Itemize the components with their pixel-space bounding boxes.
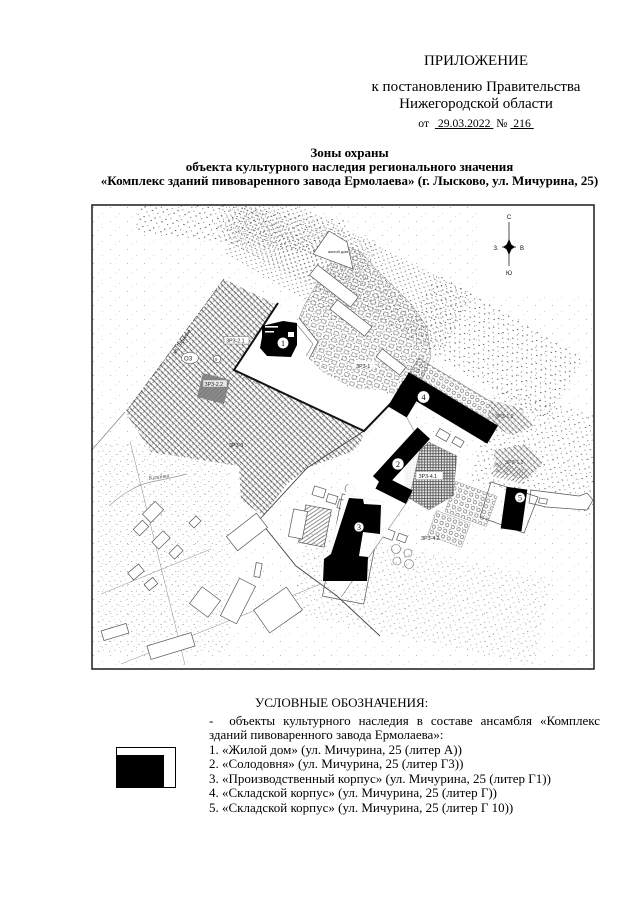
svg-text:жилой дом: жилой дом — [328, 249, 348, 254]
svg-text:ЗРЗ-2.2: ЗРЗ-2.2 — [205, 382, 224, 388]
svg-text:ОЗ: ОЗ — [184, 357, 193, 363]
svg-text:ЗРЗ-4.2: ЗРЗ-4.2 — [421, 536, 440, 542]
svg-text:ЗРЗ-1: ЗРЗ-1 — [356, 364, 370, 370]
svg-text:ЗРЗ-3: ЗРЗ-3 — [229, 443, 243, 449]
svg-text:1: 1 — [281, 339, 285, 348]
svg-text:ЗРЗ-1.3: ЗРЗ-1.3 — [505, 460, 524, 466]
svg-text:З.: З. — [493, 246, 499, 252]
svg-text:Ю: Ю — [506, 271, 512, 277]
svg-text:2: 2 — [396, 460, 400, 469]
svg-text:ЗРЗ-2.1: ЗРЗ-2.1 — [226, 339, 245, 345]
svg-text:С: С — [507, 215, 512, 221]
svg-text:ЗРЗ-4.1: ЗРЗ-4.1 — [419, 474, 438, 480]
svg-text:В: В — [520, 246, 524, 252]
svg-text:5: 5 — [518, 494, 522, 503]
svg-text:4: 4 — [422, 393, 426, 402]
svg-text:3: 3 — [357, 523, 361, 532]
svg-text:ЗРЗ-1.2: ЗРЗ-1.2 — [495, 414, 514, 420]
